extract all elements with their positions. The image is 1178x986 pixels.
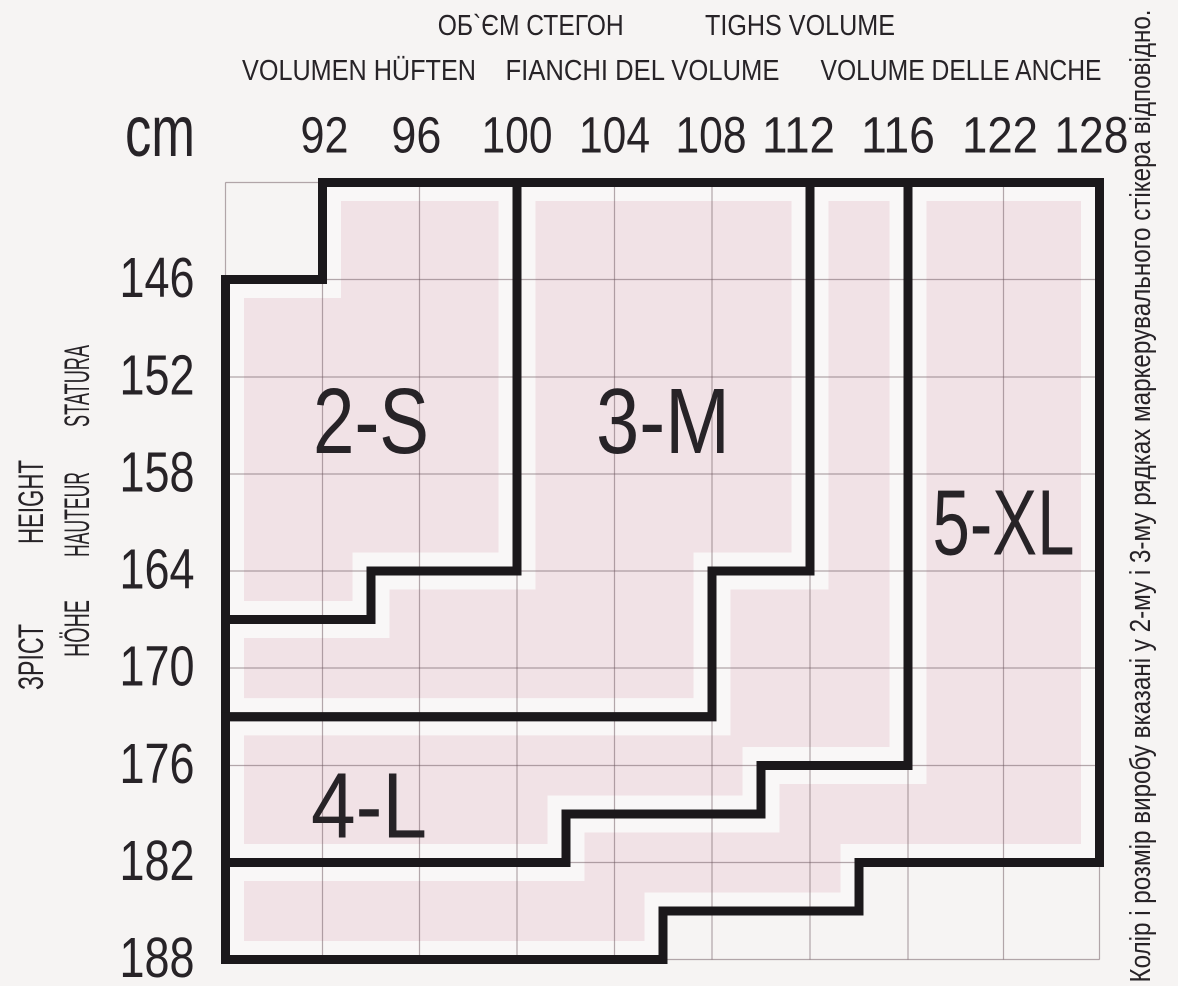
- svg-text:Колір і розмір виробу вказані: Колір і розмір виробу вказані у 2-му і 3…: [1125, 10, 1157, 983]
- svg-text:152: 152: [120, 344, 195, 408]
- svg-text:122: 122: [962, 107, 1038, 164]
- svg-text:100: 100: [482, 107, 553, 164]
- svg-text:146: 146: [120, 246, 195, 310]
- svg-text:112: 112: [762, 107, 835, 164]
- svg-text:92: 92: [301, 107, 349, 164]
- svg-text:182: 182: [120, 829, 195, 893]
- svg-text:128: 128: [1054, 107, 1128, 164]
- svg-text:170: 170: [120, 635, 195, 699]
- svg-text:HAUTEUR: HAUTEUR: [57, 472, 97, 557]
- svg-text:4-L: 4-L: [311, 754, 427, 858]
- svg-text:HÖHE: HÖHE: [57, 600, 97, 657]
- svg-text:188: 188: [120, 926, 195, 986]
- svg-text:ОБ`ЄМ СТЕГОН: ОБ`ЄМ СТЕГОН: [438, 10, 624, 42]
- svg-text:TIGHS VOLUME: TIGHS VOLUME: [705, 10, 895, 42]
- svg-text:HEIGHT: HEIGHT: [11, 460, 51, 544]
- svg-text:164: 164: [120, 538, 195, 602]
- svg-text:158: 158: [120, 441, 195, 505]
- svg-text:FIANCHI DEL VOLUME: FIANCHI DEL VOLUME: [506, 55, 780, 87]
- svg-text:104: 104: [579, 107, 650, 164]
- svg-text:108: 108: [676, 107, 747, 164]
- svg-text:116: 116: [861, 107, 935, 164]
- svg-text:176: 176: [120, 732, 195, 796]
- svg-text:96: 96: [391, 107, 441, 164]
- svg-text:VOLUMEN HÜFTEN: VOLUMEN HÜFTEN: [242, 55, 476, 87]
- svg-text:STATURA: STATURA: [57, 345, 97, 427]
- svg-text:ЗРІСТ: ЗРІСТ: [11, 624, 51, 690]
- svg-text:VOLUME DELLE ANCHE: VOLUME DELLE ANCHE: [821, 55, 1102, 87]
- svg-text:5-XL: 5-XL: [933, 471, 1075, 575]
- svg-text:cm: cm: [125, 92, 195, 172]
- svg-text:2-S: 2-S: [313, 369, 429, 473]
- svg-text:3-M: 3-M: [596, 369, 730, 473]
